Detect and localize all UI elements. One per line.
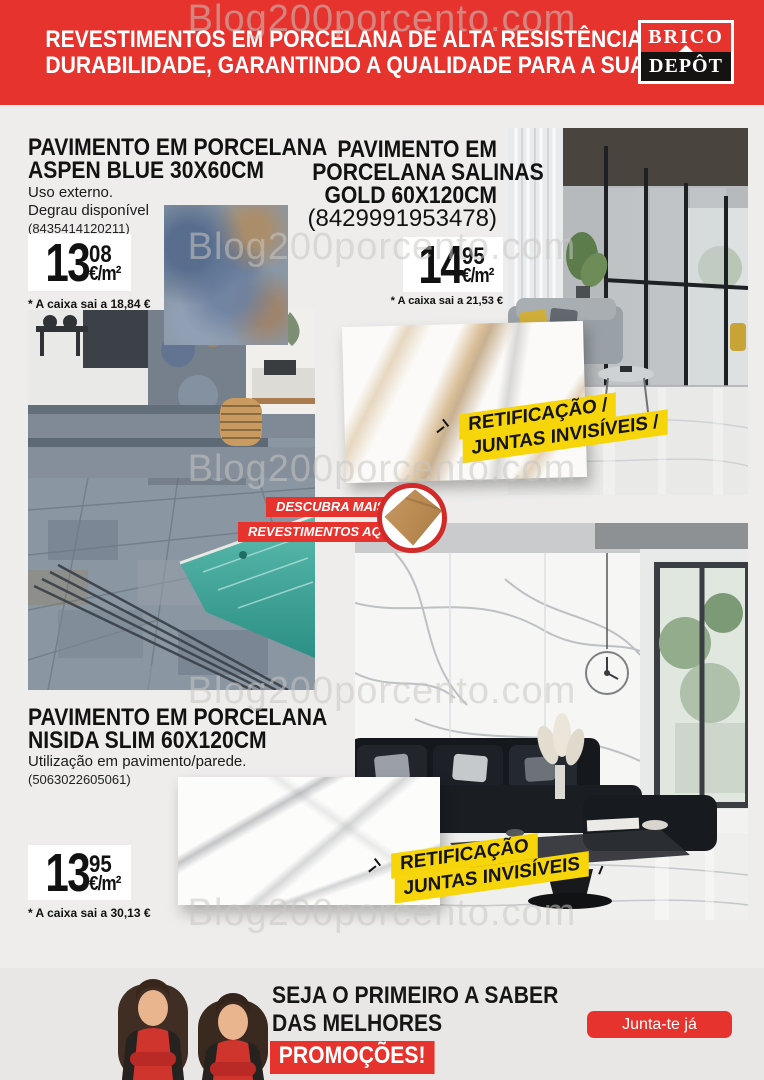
product-2-title-line3: GOLD 60X120CM — [312, 184, 497, 207]
product-1-note1: Uso externo. — [28, 184, 149, 202]
product-2-price-unit: €/m² — [462, 266, 494, 286]
newsletter-line2: DAS MELHORES — [272, 1010, 558, 1038]
discover-line2: REVESTIMENTOS AQUI — [248, 524, 395, 539]
product-1-title-line1: PAVIMENTO EM PORCELANA — [28, 136, 327, 159]
headline-line2: DURABILIDADE, GARANTINDO A QUALIDADE PAR… — [45, 53, 592, 79]
slash-decoration: / — [653, 412, 658, 434]
wood-sample-circle[interactable] — [377, 483, 447, 553]
product-1-price-unit: €/m² — [89, 264, 121, 284]
product-2-box-note: * A caixa sai a 21,53 € — [383, 295, 503, 307]
product-3-title-line2: NISIDA SLIM 60X120CM — [28, 729, 327, 752]
product-3-price-dec: 95 — [89, 855, 121, 874]
woman-left — [118, 979, 188, 1080]
product-2-title-line2: PORCELANA SALINAS — [312, 161, 497, 184]
product-3-title-line1: PAVIMENTO EM PORCELANA — [28, 706, 327, 729]
wood-tile-image — [382, 488, 442, 548]
product-3-notes: Utilização em pavimento/parede. (5063022… — [28, 753, 246, 788]
header-banner: REVESTIMENTOS EM PORCELANA DE ALTA RESIS… — [0, 0, 764, 105]
product-3-title: PAVIMENTO EM PORCELANA NISIDA SLIM 60X12… — [28, 706, 368, 752]
product-1-price: 13 08 €/m² — [28, 234, 131, 291]
product-3-price-unit: €/m² — [89, 874, 121, 894]
house-icon — [679, 45, 693, 52]
aspen-blue-tile-sample — [164, 205, 288, 345]
product-3-ean: (5063022605061) — [28, 771, 246, 788]
woman-right — [198, 993, 268, 1080]
product-2-price-dec: 95 — [462, 247, 494, 266]
headline-line1: REVESTIMENTOS EM PORCELANA DE ALTA RESIS… — [45, 27, 592, 53]
product-3-note1: Utilização em pavimento/parede. — [28, 753, 246, 771]
flyer-page: REVESTIMENTOS EM PORCELANA DE ALTA RESIS… — [0, 0, 764, 1080]
product-1-box-note: * A caixa sai a 18,84 € — [28, 297, 151, 311]
product-2-title: PAVIMENTO EM PORCELANA SALINAS GOLD 60X1… — [287, 138, 497, 230]
header-headline: REVESTIMENTOS EM PORCELANA DE ALTA RESIS… — [8, 27, 630, 79]
product-1-notes: Uso externo. Degrau disponível (84354141… — [28, 184, 149, 237]
newsletter-promo-highlight: PROMOÇÕES! — [270, 1041, 434, 1074]
product-2-price-int: 14 — [419, 238, 463, 292]
newsletter-text: SEJA O PRIMEIRO A SABER DAS MELHORES PRO… — [272, 982, 597, 1074]
join-now-button[interactable]: Junta-te já — [587, 1011, 732, 1038]
product-2-price: 14 95 €/m² — [403, 237, 503, 292]
staff-women-photo — [58, 972, 303, 1080]
product-3-box-note: * A caixa sai a 30,13 € — [28, 906, 151, 920]
logo-depot-text: DEPÔT — [641, 52, 731, 81]
brico-depot-logo: BRICO DEPÔT — [638, 20, 734, 84]
product-3-price-int: 13 — [45, 846, 89, 900]
product-1-price-int: 13 — [45, 236, 89, 290]
slash-decoration: / — [602, 395, 607, 417]
product-1-price-dec: 08 — [89, 245, 121, 264]
product-1-title-line2: ASPEN BLUE 30X60CM — [28, 159, 327, 182]
product-1-note2: Degrau disponível — [28, 202, 149, 220]
discover-ribbon-1[interactable]: DESCUBRA MAIS — [266, 497, 395, 517]
product-2-title-line1: PAVIMENTO EM — [312, 138, 497, 161]
discover-line1: DESCUBRA MAIS — [276, 499, 385, 514]
newsletter-line1: SEJA O PRIMEIRO A SABER — [272, 982, 558, 1010]
product-2-ean: (8429991953478) — [287, 207, 497, 230]
product-3-price: 13 95 €/m² — [28, 845, 131, 900]
